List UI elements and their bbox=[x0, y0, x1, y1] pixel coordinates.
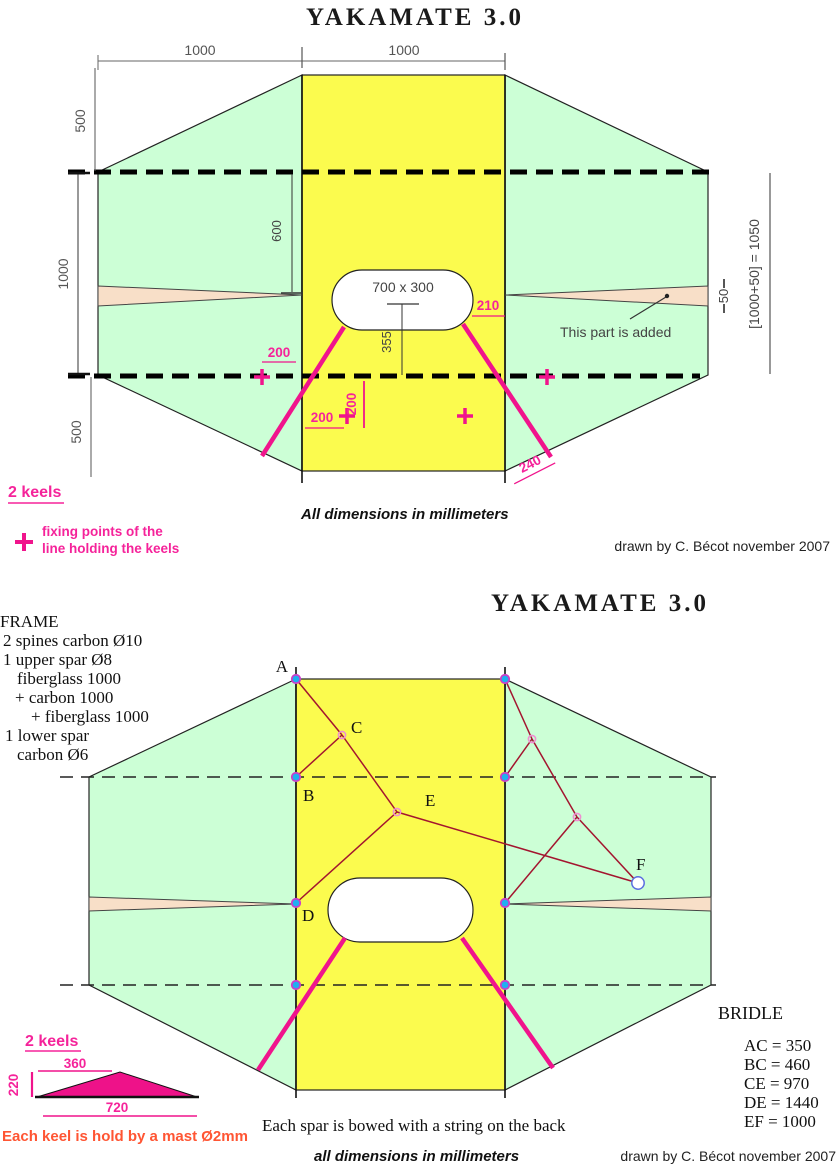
anchor-dot-A2 bbox=[501, 675, 509, 683]
point-label-B: B bbox=[303, 786, 314, 805]
frame-spec-block: FRAME 2 spines carbon Ø10 1 upper spar Ø… bbox=[0, 612, 149, 764]
bridle-title: BRIDLE bbox=[718, 1003, 783, 1023]
bridle-item: AC = 350 bbox=[744, 1036, 811, 1055]
anchor-dot-low-right bbox=[501, 981, 509, 989]
bottom-units-note: all dimensions in millimeters bbox=[314, 1148, 519, 1165]
top-units-note: All dimensions in millimeters bbox=[300, 506, 509, 523]
keel-dim-upper: 360 bbox=[64, 1056, 87, 1071]
dim-span-left: 1000 bbox=[184, 42, 215, 58]
point-label-D: D bbox=[302, 906, 314, 925]
added-part-note: This part is added bbox=[560, 324, 671, 340]
dim-keel-left-top: 200 bbox=[268, 345, 291, 360]
dim-left-mid: 1000 bbox=[55, 258, 71, 289]
dim-left-upper: 500 bbox=[72, 109, 88, 133]
point-label-E: E bbox=[425, 791, 435, 810]
dim-left-lower: 500 bbox=[68, 420, 84, 444]
tow-point-F-ring bbox=[632, 877, 644, 889]
anchor-dot-B2 bbox=[501, 773, 509, 781]
anchor-dot-D bbox=[292, 899, 300, 907]
dim-keel-left-vert: 200 bbox=[344, 393, 359, 416]
anchor-dot-B bbox=[292, 773, 300, 781]
bridle-item: EF = 1000 bbox=[744, 1112, 816, 1131]
bridle-item: DE = 1440 bbox=[744, 1093, 819, 1112]
bridle-item: CE = 970 bbox=[744, 1074, 809, 1093]
spar-bow-note: Each spar is bowed with a string on the … bbox=[262, 1116, 566, 1135]
keel-mast-note: Each keel is hold by a mast Ø2mm bbox=[2, 1128, 248, 1145]
bottom-credit: drawn by C. Bécot november 2007 bbox=[620, 1148, 836, 1164]
frame-line: + carbon 1000 bbox=[15, 688, 113, 707]
dim-hole-size: 700 x 300 bbox=[372, 279, 434, 295]
top-keels-label: 2 keels bbox=[8, 484, 61, 501]
top-diagram-title: YAKAMATE 3.0 bbox=[306, 4, 524, 31]
frame-line: 1 lower spar bbox=[5, 726, 89, 745]
vent-hole-2 bbox=[328, 878, 473, 942]
frame-line: carbon Ø6 bbox=[17, 745, 88, 764]
dim-hole-to-line: 355 bbox=[379, 331, 394, 353]
keel-dim-height: 220 bbox=[6, 1074, 21, 1097]
bottom-keels-label: 2 keels bbox=[25, 1033, 78, 1050]
bottom-diagram-title: YAKAMATE 3.0 bbox=[491, 590, 709, 617]
frame-line: FRAME bbox=[0, 612, 59, 631]
frame-line: 2 spines carbon Ø10 bbox=[3, 631, 142, 650]
frame-line: + fiberglass 1000 bbox=[31, 707, 149, 726]
anchor-dot-low-left bbox=[292, 981, 300, 989]
keel-triangle bbox=[37, 1072, 197, 1097]
dim-keel-right-top: 210 bbox=[477, 298, 500, 313]
frame-line: fiberglass 1000 bbox=[17, 669, 121, 688]
legend-line2: line holding the keels bbox=[42, 541, 179, 556]
top-right-wing-panel bbox=[505, 75, 708, 471]
bridle-item: BC = 460 bbox=[744, 1055, 810, 1074]
dim-right-total: [1000+50] = 1050 bbox=[746, 219, 762, 329]
top-left-wing-panel bbox=[98, 75, 302, 471]
dim-span-center: 1000 bbox=[388, 42, 419, 58]
anchor-dot-D2 bbox=[501, 899, 509, 907]
added-part-arrow-dot bbox=[665, 294, 669, 298]
dim-keel-left-bottom: 200 bbox=[311, 410, 334, 425]
keel-dim-base: 720 bbox=[106, 1100, 129, 1115]
dim-added-height: 50 bbox=[716, 289, 731, 303]
point-label-A: A bbox=[276, 657, 289, 676]
top-credit: drawn by C. Bécot november 2007 bbox=[614, 538, 830, 554]
anchor-dot-A bbox=[292, 675, 300, 683]
kite-plan-document: YAKAMATE 3.0 700 x 300 355 600 210 200 2… bbox=[0, 0, 840, 1170]
bottom-left-wing-panel bbox=[89, 679, 296, 1090]
legend-cross-icon bbox=[15, 533, 33, 551]
dim-spar-offset: 600 bbox=[269, 220, 284, 242]
frame-line: 1 upper spar Ø8 bbox=[3, 650, 112, 669]
plan-drawing: YAKAMATE 3.0 700 x 300 355 600 210 200 2… bbox=[0, 0, 840, 1170]
point-label-C: C bbox=[351, 718, 362, 737]
legend-line1: fixing points of the bbox=[42, 524, 163, 539]
point-label-F: F bbox=[636, 855, 645, 874]
